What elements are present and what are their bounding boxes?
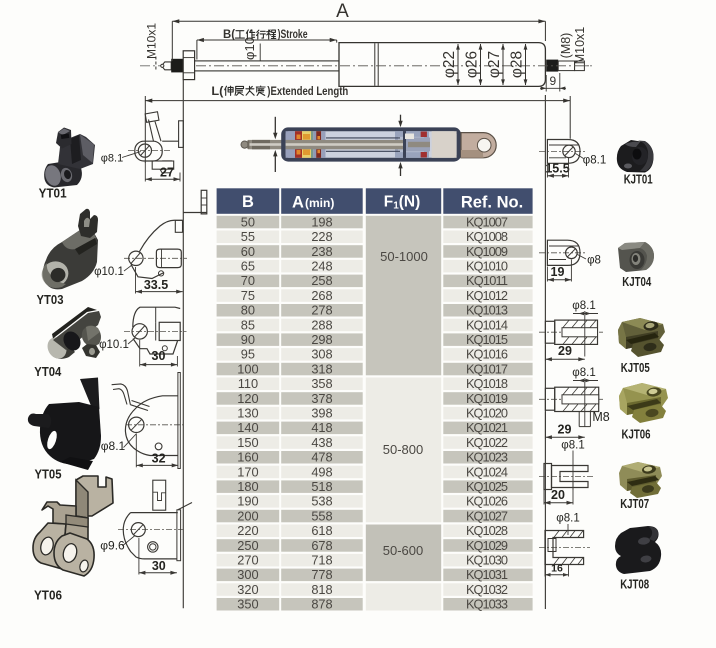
svg-text:878: 878 [311,597,332,612]
svg-text:190: 190 [237,494,258,509]
svg-text:KQ1008: KQ1008 [466,229,508,244]
svg-text:85: 85 [241,317,255,332]
svg-text:φ8.1: φ8.1 [572,367,595,379]
svg-text:300: 300 [237,567,258,582]
svg-text:110: 110 [238,376,258,391]
svg-text:φ8.1: φ8.1 [583,155,606,167]
svg-text:KQ1023: KQ1023 [466,450,508,465]
svg-text:32: 32 [152,451,166,465]
svg-text:)Extended Length: )Extended Length [267,84,348,98]
svg-text:KQ1015: KQ1015 [466,332,508,347]
svg-text:678: 678 [311,538,332,553]
svg-text:150: 150 [237,435,258,450]
svg-text:558: 558 [311,508,332,523]
svg-text:15.5: 15.5 [545,161,569,175]
svg-text:20: 20 [551,488,565,502]
svg-text:KJT01: KJT01 [624,173,653,187]
svg-text:φ8: φ8 [587,255,601,267]
svg-text:120: 120 [237,391,258,406]
svg-text:95: 95 [241,347,255,362]
svg-text:φ10: φ10 [242,37,257,60]
svg-text:298: 298 [311,332,332,347]
svg-text:170: 170 [237,464,258,479]
svg-text:70: 70 [241,273,255,288]
svg-text:248: 248 [311,259,332,274]
svg-text:258: 258 [311,273,332,288]
svg-text:65: 65 [241,259,255,274]
svg-text:60: 60 [241,244,255,259]
svg-text:(M8): (M8) [559,33,573,59]
svg-text:KQ1020: KQ1020 [466,406,508,421]
svg-text:KQ1033: KQ1033 [466,597,508,612]
svg-text:φ8.1: φ8.1 [572,300,595,312]
svg-text:288: 288 [311,317,332,332]
svg-text:φ10.1: φ10.1 [94,266,124,278]
svg-text:160: 160 [237,450,258,465]
svg-text:KJT04: KJT04 [622,275,651,289]
svg-text:130: 130 [237,406,258,421]
svg-text:818: 818 [311,582,332,597]
svg-text:350: 350 [237,597,258,612]
svg-text:308: 308 [311,347,332,362]
svg-text:30: 30 [152,559,166,573]
svg-text:M8: M8 [592,410,609,424]
svg-text:200: 200 [237,508,258,523]
svg-text:KQ1012: KQ1012 [466,288,508,303]
svg-text:KQ1030: KQ1030 [466,553,508,568]
svg-text:19: 19 [551,265,565,279]
svg-text:KQ1018: KQ1018 [466,376,508,391]
svg-text:29: 29 [558,344,572,358]
svg-text:75: 75 [241,288,255,303]
svg-text:618: 618 [311,523,332,538]
svg-text:KJT06: KJT06 [622,428,651,442]
svg-text:228: 228 [311,229,332,244]
svg-text:KJT07: KJT07 [620,497,649,511]
svg-text:φ8.1: φ8.1 [101,153,123,165]
svg-text:90: 90 [241,332,255,347]
svg-text:50-800: 50-800 [383,442,423,457]
svg-text:KQ1007: KQ1007 [466,214,508,229]
svg-text:YT01: YT01 [39,185,67,200]
svg-text:268: 268 [311,288,332,303]
svg-text:418: 418 [311,420,332,435]
svg-text:(min): (min) [305,196,334,210]
svg-text:YT04: YT04 [34,364,62,379]
svg-text:318: 318 [311,361,332,376]
svg-text:Ref. No.: Ref. No. [461,194,523,212]
svg-text:30: 30 [152,349,166,363]
svg-text:238: 238 [311,244,332,259]
svg-text:M10x1: M10x1 [573,27,587,65]
svg-text:KQ1022: KQ1022 [466,435,508,450]
svg-text:YT06: YT06 [34,587,62,602]
svg-text:KQ1017: KQ1017 [466,361,508,376]
svg-text:KQ1011: KQ1011 [466,273,508,288]
svg-text:KQ1013: KQ1013 [466,303,508,318]
svg-text:B: B [242,193,254,211]
svg-text:KQ1026: KQ1026 [466,494,508,509]
svg-text:KQ1014: KQ1014 [466,317,508,332]
svg-text:478: 478 [311,450,332,465]
svg-text:YT03: YT03 [37,292,64,307]
svg-text:φ22: φ22 [441,51,458,78]
svg-text:φ26: φ26 [464,51,481,78]
svg-text:M10x1: M10x1 [144,23,158,59]
svg-text:B(: B( [223,29,235,41]
svg-text:KQ1025: KQ1025 [466,479,508,494]
svg-text:518: 518 [311,479,332,494]
svg-text:80: 80 [241,303,255,318]
svg-text:180: 180 [237,479,258,494]
svg-text:198: 198 [311,214,332,229]
svg-text:KQ1010: KQ1010 [466,259,508,274]
svg-text:9: 9 [549,74,556,88]
svg-text:358: 358 [311,376,332,391]
svg-text:A: A [292,194,304,212]
svg-text:KQ1028: KQ1028 [466,523,508,538]
svg-text:φ8.1: φ8.1 [101,439,126,453]
svg-text:KQ1009: KQ1009 [466,244,508,259]
svg-text:378: 378 [311,391,332,406]
svg-text:KQ1024: KQ1024 [466,464,508,479]
svg-text:KQ1027: KQ1027 [466,508,508,523]
svg-text:KQ1031: KQ1031 [466,567,508,582]
svg-text:498: 498 [311,464,332,479]
svg-text:398: 398 [311,406,332,421]
svg-text:KQ1029: KQ1029 [466,538,508,553]
svg-text:50-1000: 50-1000 [380,249,428,264]
svg-text:538: 538 [311,494,332,509]
svg-text:KQ1019: KQ1019 [466,391,508,406]
svg-text:278: 278 [311,303,332,318]
svg-text:φ8.1: φ8.1 [556,513,579,525]
svg-text:220: 220 [237,523,258,538]
svg-text:250: 250 [237,538,258,553]
svg-text:KJT05: KJT05 [621,361,650,375]
svg-text:320: 320 [237,582,258,597]
svg-text:50-600: 50-600 [383,543,423,558]
svg-text:φ9.6: φ9.6 [100,539,125,553]
svg-text:718: 718 [311,553,332,568]
svg-text:270: 270 [237,553,258,568]
svg-text:KJT08: KJT08 [620,577,649,591]
svg-text:YT05: YT05 [35,466,62,481]
svg-text:33.5: 33.5 [144,278,168,292]
svg-text:29: 29 [558,423,572,437]
svg-text:φ10.1: φ10.1 [99,339,129,351]
svg-text:16: 16 [551,563,563,575]
svg-text:27: 27 [160,166,174,180]
svg-text:)Stroke: )Stroke [278,29,308,41]
svg-text:100: 100 [237,361,258,376]
svg-text:φ28: φ28 [509,51,526,78]
svg-text:L(: L( [211,84,223,98]
svg-text:55: 55 [241,229,255,244]
svg-text:778: 778 [311,567,332,582]
svg-text:KQ1032: KQ1032 [466,582,508,597]
svg-text:φ8.1: φ8.1 [561,440,584,452]
svg-text:F1(N): F1(N) [384,194,421,212]
svg-text:50: 50 [241,214,255,229]
svg-text:KQ1021: KQ1021 [466,420,508,435]
svg-text:438: 438 [311,435,332,450]
svg-text:A: A [336,1,349,22]
svg-text:140: 140 [237,420,258,435]
svg-text:KQ1016: KQ1016 [466,347,508,362]
svg-text:φ27: φ27 [486,51,503,78]
